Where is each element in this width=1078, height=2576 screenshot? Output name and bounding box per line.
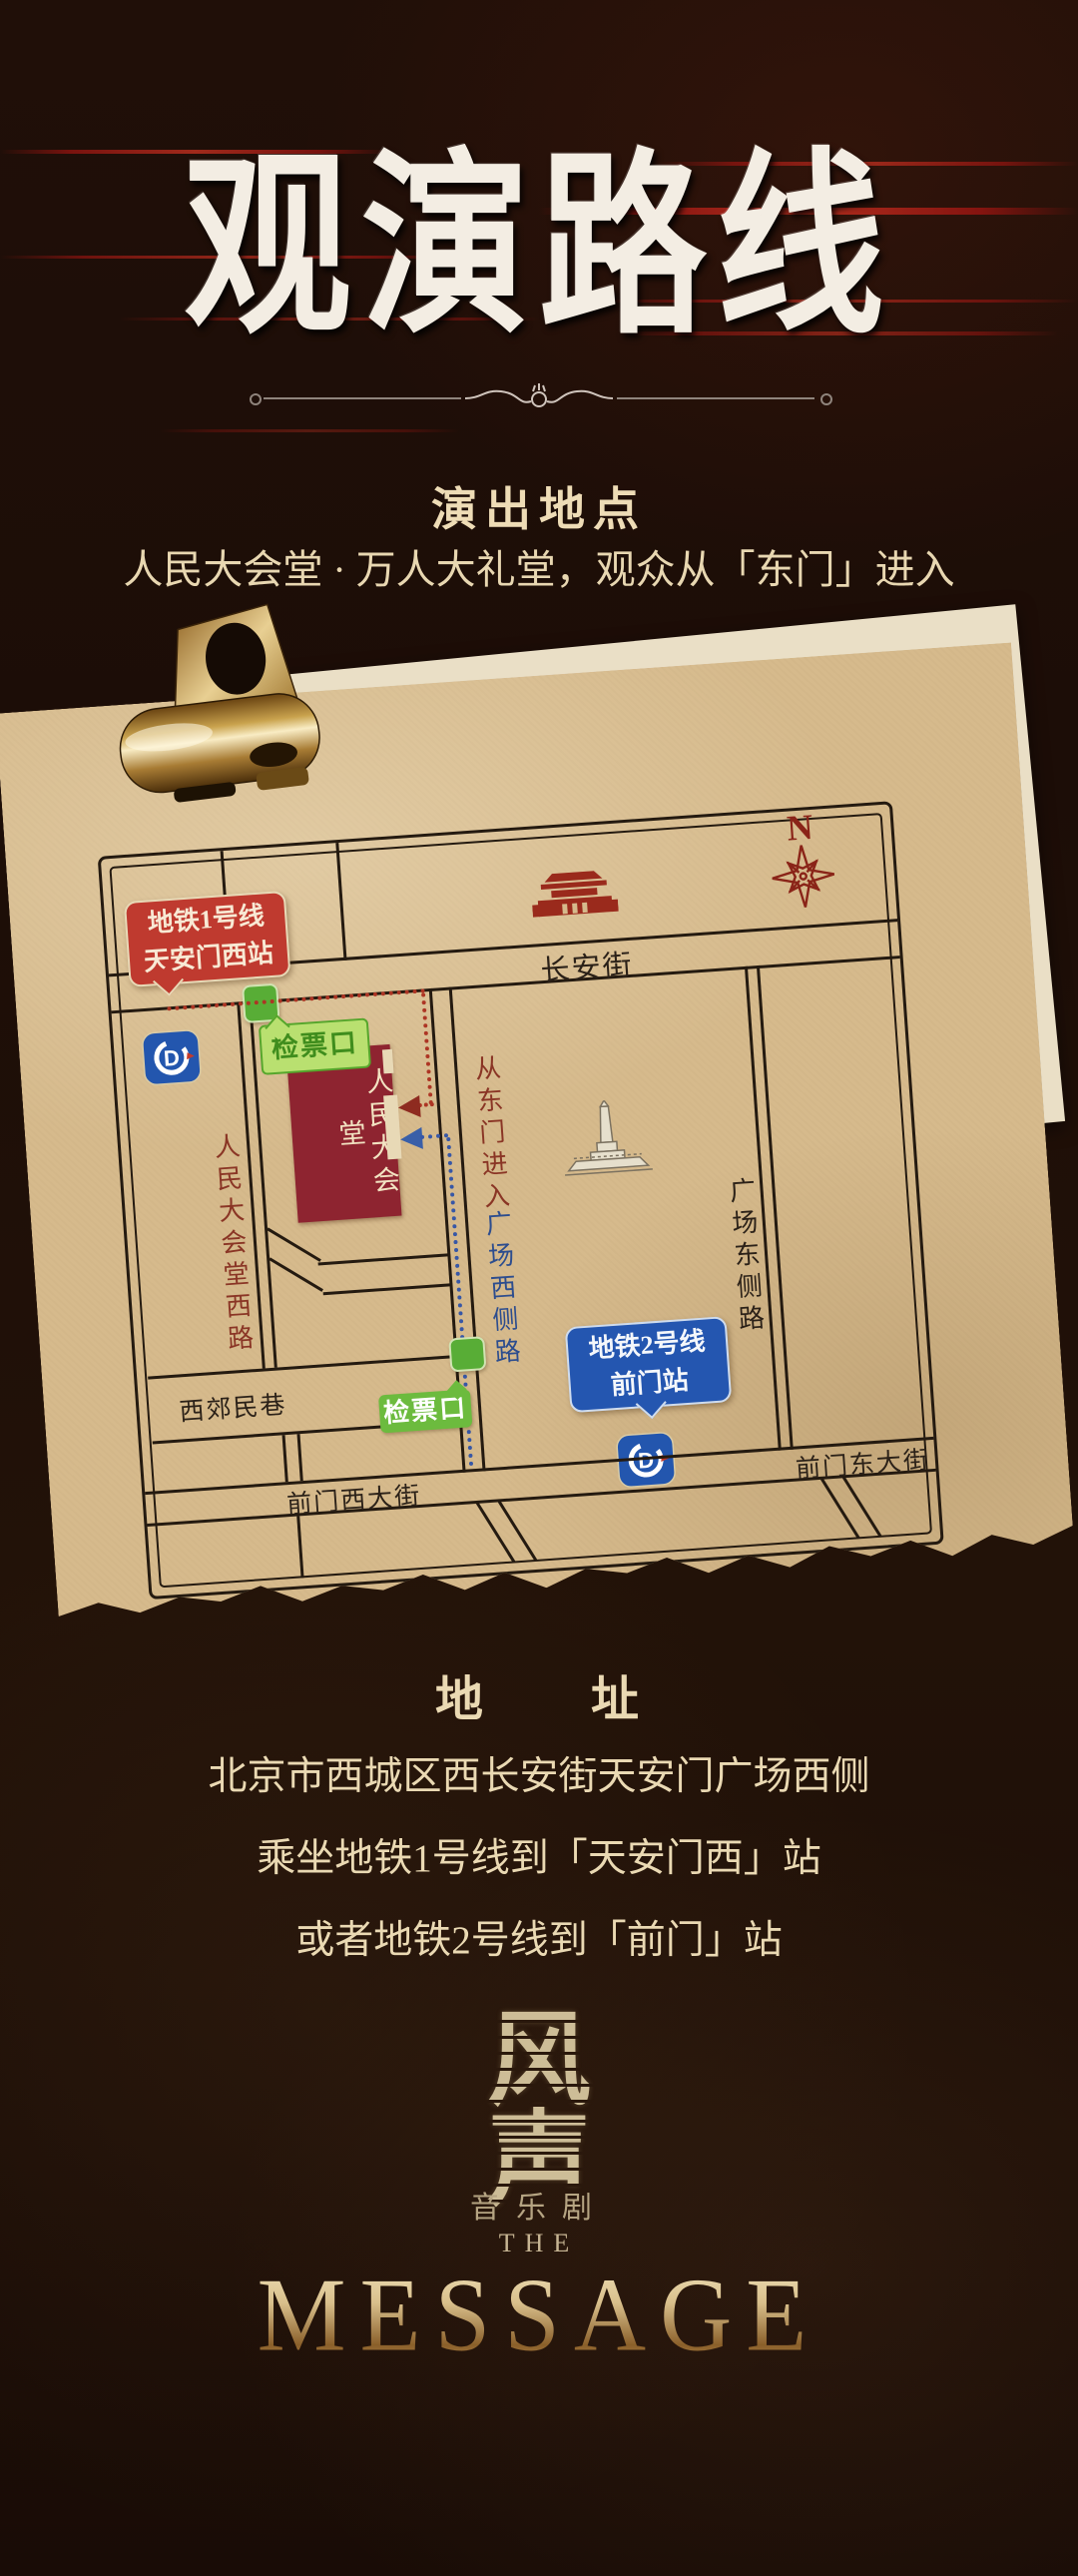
- tiananmen-icon: [530, 866, 619, 922]
- logo-genre: 音乐剧: [0, 2183, 1078, 2227]
- route-map: 长安街 N: [98, 801, 944, 1600]
- binder-clip-icon: [88, 589, 351, 827]
- monument-icon: [556, 1097, 657, 1184]
- compass-rose-icon: [770, 842, 837, 910]
- svg-text:D: D: [637, 1448, 655, 1474]
- checkpoint-marker-2: [448, 1336, 486, 1372]
- route-line1-arrow: [397, 1095, 420, 1118]
- metro-line1-bubble: 地铁1号线 天安门西站: [124, 891, 291, 987]
- checkpoint-label-1: 检票口: [259, 1017, 371, 1075]
- logo-name: MESSAGE: [0, 2254, 1078, 2375]
- ornamental-divider: [250, 383, 828, 413]
- address-line: 乘坐地铁1号线到「天安门西」站: [0, 1827, 1078, 1883]
- svg-text:D: D: [163, 1045, 181, 1071]
- page-title: 观演路线: [0, 86, 1078, 372]
- checkpoint-label-2: 检票口: [378, 1389, 472, 1433]
- venue-heading: 演出地点: [0, 473, 1078, 539]
- metro-logo-icon-line1: D: [141, 1028, 203, 1086]
- metro-line2-bubble: 地铁2号线 前门站: [565, 1316, 733, 1413]
- address-line: 或者地铁2号线到「前门」站: [0, 1909, 1078, 1965]
- poster-page: 观演路线 演出地点 人民大会堂 · 万人大礼堂，观众从「东门」进入: [0, 0, 1078, 2576]
- venue-line: 人民大会堂 · 万人大礼堂，观众从「东门」进入: [0, 537, 1078, 595]
- great-hall-label: 人民大会堂: [286, 1052, 401, 1219]
- address-heading: 地 址: [0, 1659, 1078, 1729]
- street-label-changanjie: 长安街: [539, 942, 635, 989]
- east-gate-door-small: [382, 1049, 394, 1074]
- divider-line: [617, 397, 814, 399]
- street-label-xijiaominxiang: 西郊民巷: [178, 1385, 287, 1428]
- glitch-streak: [160, 429, 459, 432]
- divider-end-dot: [820, 393, 832, 405]
- address-line: 北京市西城区西长安街天安门广场西侧: [0, 1745, 1078, 1801]
- divider-end-dot: [250, 393, 262, 405]
- divider-flourish-icon: [461, 383, 617, 413]
- divider-line: [264, 397, 461, 399]
